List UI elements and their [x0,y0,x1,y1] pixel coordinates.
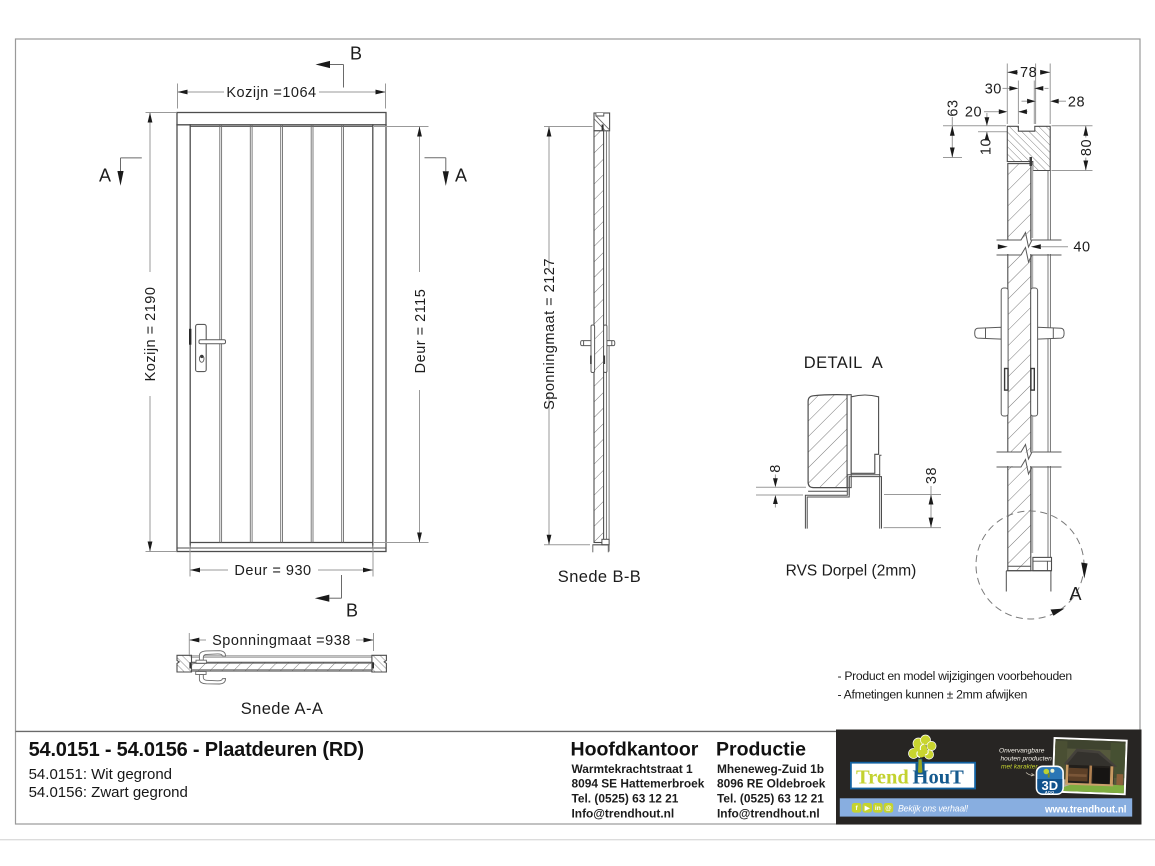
svg-text:80: 80 [1079,139,1095,156]
svg-text:Deur = 2115: Deur = 2115 [413,289,429,374]
svg-text:Info@trendhout.nl: Info@trendhout.nl [572,806,675,820]
svg-text:63: 63 [945,99,961,116]
svg-text:20: 20 [965,105,982,121]
svg-text:Sponningmaat = 2127: Sponningmaat = 2127 [542,258,558,410]
svg-text:54.0151: Wit gegrond: 54.0151: Wit gegrond [29,766,172,783]
svg-text:DETAIL A: DETAIL A [804,354,883,372]
svg-text:8094 SE Hattemerbroek: 8094 SE Hattemerbroek [572,777,705,791]
svg-text:Kozijn =1064: Kozijn =1064 [226,85,316,101]
svg-text:@: @ [885,805,891,812]
svg-text:Info@trendhout.nl: Info@trendhout.nl [717,806,820,820]
svg-text:Mheneweg-Zuid 1b: Mheneweg-Zuid 1b [717,762,824,776]
svg-text:Warmtekrachtstraat 1: Warmtekrachtstraat 1 [572,762,694,776]
svg-text:- Afmetingen kunnen ± 2mm afwi: - Afmetingen kunnen ± 2mm afwijken [838,688,1028,702]
svg-text:Tel. (0525) 63 12 21: Tel. (0525) 63 12 21 [572,792,679,806]
svg-text:Trend: Trend [856,767,909,789]
svg-text:28: 28 [1068,94,1085,110]
svg-text:houten producten: houten producten [1001,756,1053,763]
svg-text:40: 40 [1073,240,1090,256]
svg-text:Kozijn = 2190: Kozijn = 2190 [143,287,159,382]
svg-text:www.trendhout.nl: www.trendhout.nl [1044,804,1126,815]
svg-text:- Product en model wijzigingen: - Product en model wijzigingen voorbehou… [838,669,1072,683]
svg-text:Hoofdkantoor: Hoofdkantoor [571,739,699,761]
svg-text:78: 78 [1020,65,1037,81]
svg-text:A: A [99,166,111,186]
svg-text:Onvervangbare: Onvervangbare [999,748,1045,755]
svg-text:Deur = 930: Deur = 930 [234,563,311,579]
svg-text:A: A [455,166,467,186]
svg-text:ADO: ADO [1045,791,1055,795]
svg-text:in: in [875,805,881,812]
svg-text:A: A [1069,584,1081,604]
svg-text:Snede B-B: Snede B-B [558,568,641,586]
svg-text:Bekijk ons verhaal!: Bekijk ons verhaal! [898,804,969,814]
svg-text:B: B [350,44,362,64]
svg-text:54.0151 - 54.0156 - Plaatdeure: 54.0151 - 54.0156 - Plaatdeuren (RD) [29,739,364,761]
svg-text:54.0156: Zwart gegrond: 54.0156: Zwart gegrond [29,784,188,801]
svg-text:38: 38 [924,467,940,484]
svg-text:30: 30 [985,82,1002,98]
svg-text:RVS Dorpel (2mm): RVS Dorpel (2mm) [786,563,917,580]
svg-text:Snede A-A: Snede A-A [241,700,324,718]
svg-text:B: B [346,601,358,621]
svg-text:8096 RE Oldebroek: 8096 RE Oldebroek [717,777,826,791]
svg-text:Tel. (0525) 63 12 21: Tel. (0525) 63 12 21 [717,792,824,806]
svg-text:Sponningmaat =938: Sponningmaat =938 [212,633,351,649]
svg-text:met karakter: met karakter [1001,764,1038,771]
svg-text:Productie: Productie [716,739,806,761]
svg-text:▶: ▶ [864,805,871,812]
svg-text:8: 8 [768,464,784,473]
svg-text:10: 10 [979,138,995,155]
